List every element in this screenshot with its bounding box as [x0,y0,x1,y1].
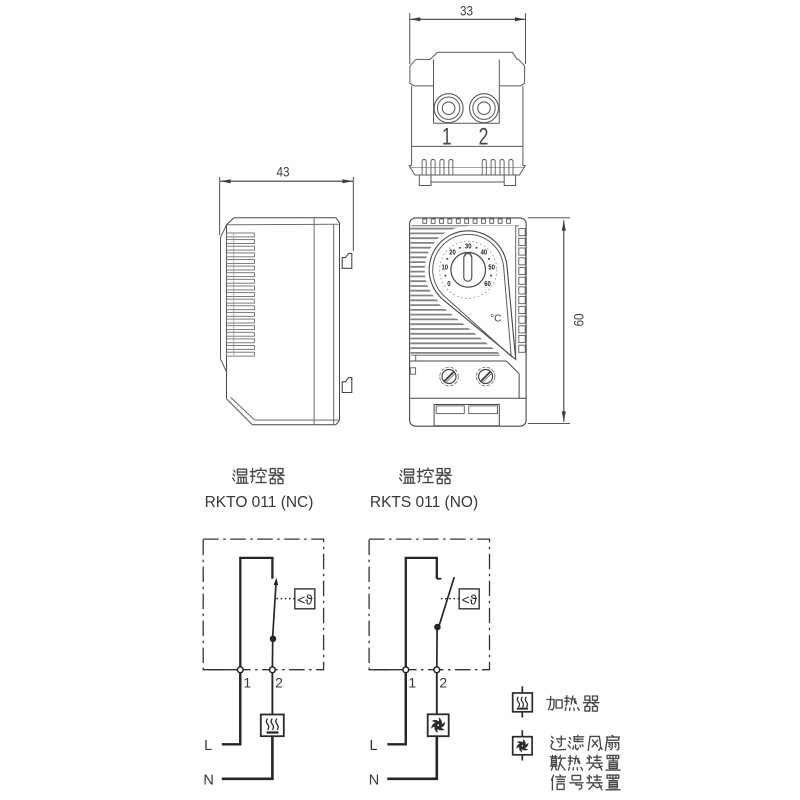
svg-text:1: 1 [408,675,416,691]
svg-text:RKTS 011 (NO): RKTS 011 (NO) [370,494,478,511]
svg-text:N: N [203,773,213,789]
svg-text:<ϑ: <ϑ [462,592,478,607]
svg-text:2: 2 [439,675,447,691]
svg-text:RKTO 011 (NC): RKTO 011 (NC) [205,494,314,511]
svg-text:30: 30 [465,243,472,251]
svg-text:10: 10 [441,264,448,272]
svg-text:L: L [369,738,377,754]
svg-text:43: 43 [276,164,289,180]
svg-text:0: 0 [447,280,451,288]
svg-text:L: L [204,738,212,754]
svg-text:20: 20 [449,249,456,257]
svg-text:2: 2 [275,675,283,691]
svg-text:33: 33 [460,3,473,19]
svg-text:<ϑ: <ϑ [297,592,313,607]
svg-text:60: 60 [484,280,491,288]
svg-text:60: 60 [570,313,586,326]
svg-text:°C: °C [490,314,501,325]
svg-text:N: N [369,773,379,789]
svg-text:1: 1 [243,675,251,691]
svg-text:50: 50 [488,264,495,272]
svg-text:40: 40 [481,249,488,257]
